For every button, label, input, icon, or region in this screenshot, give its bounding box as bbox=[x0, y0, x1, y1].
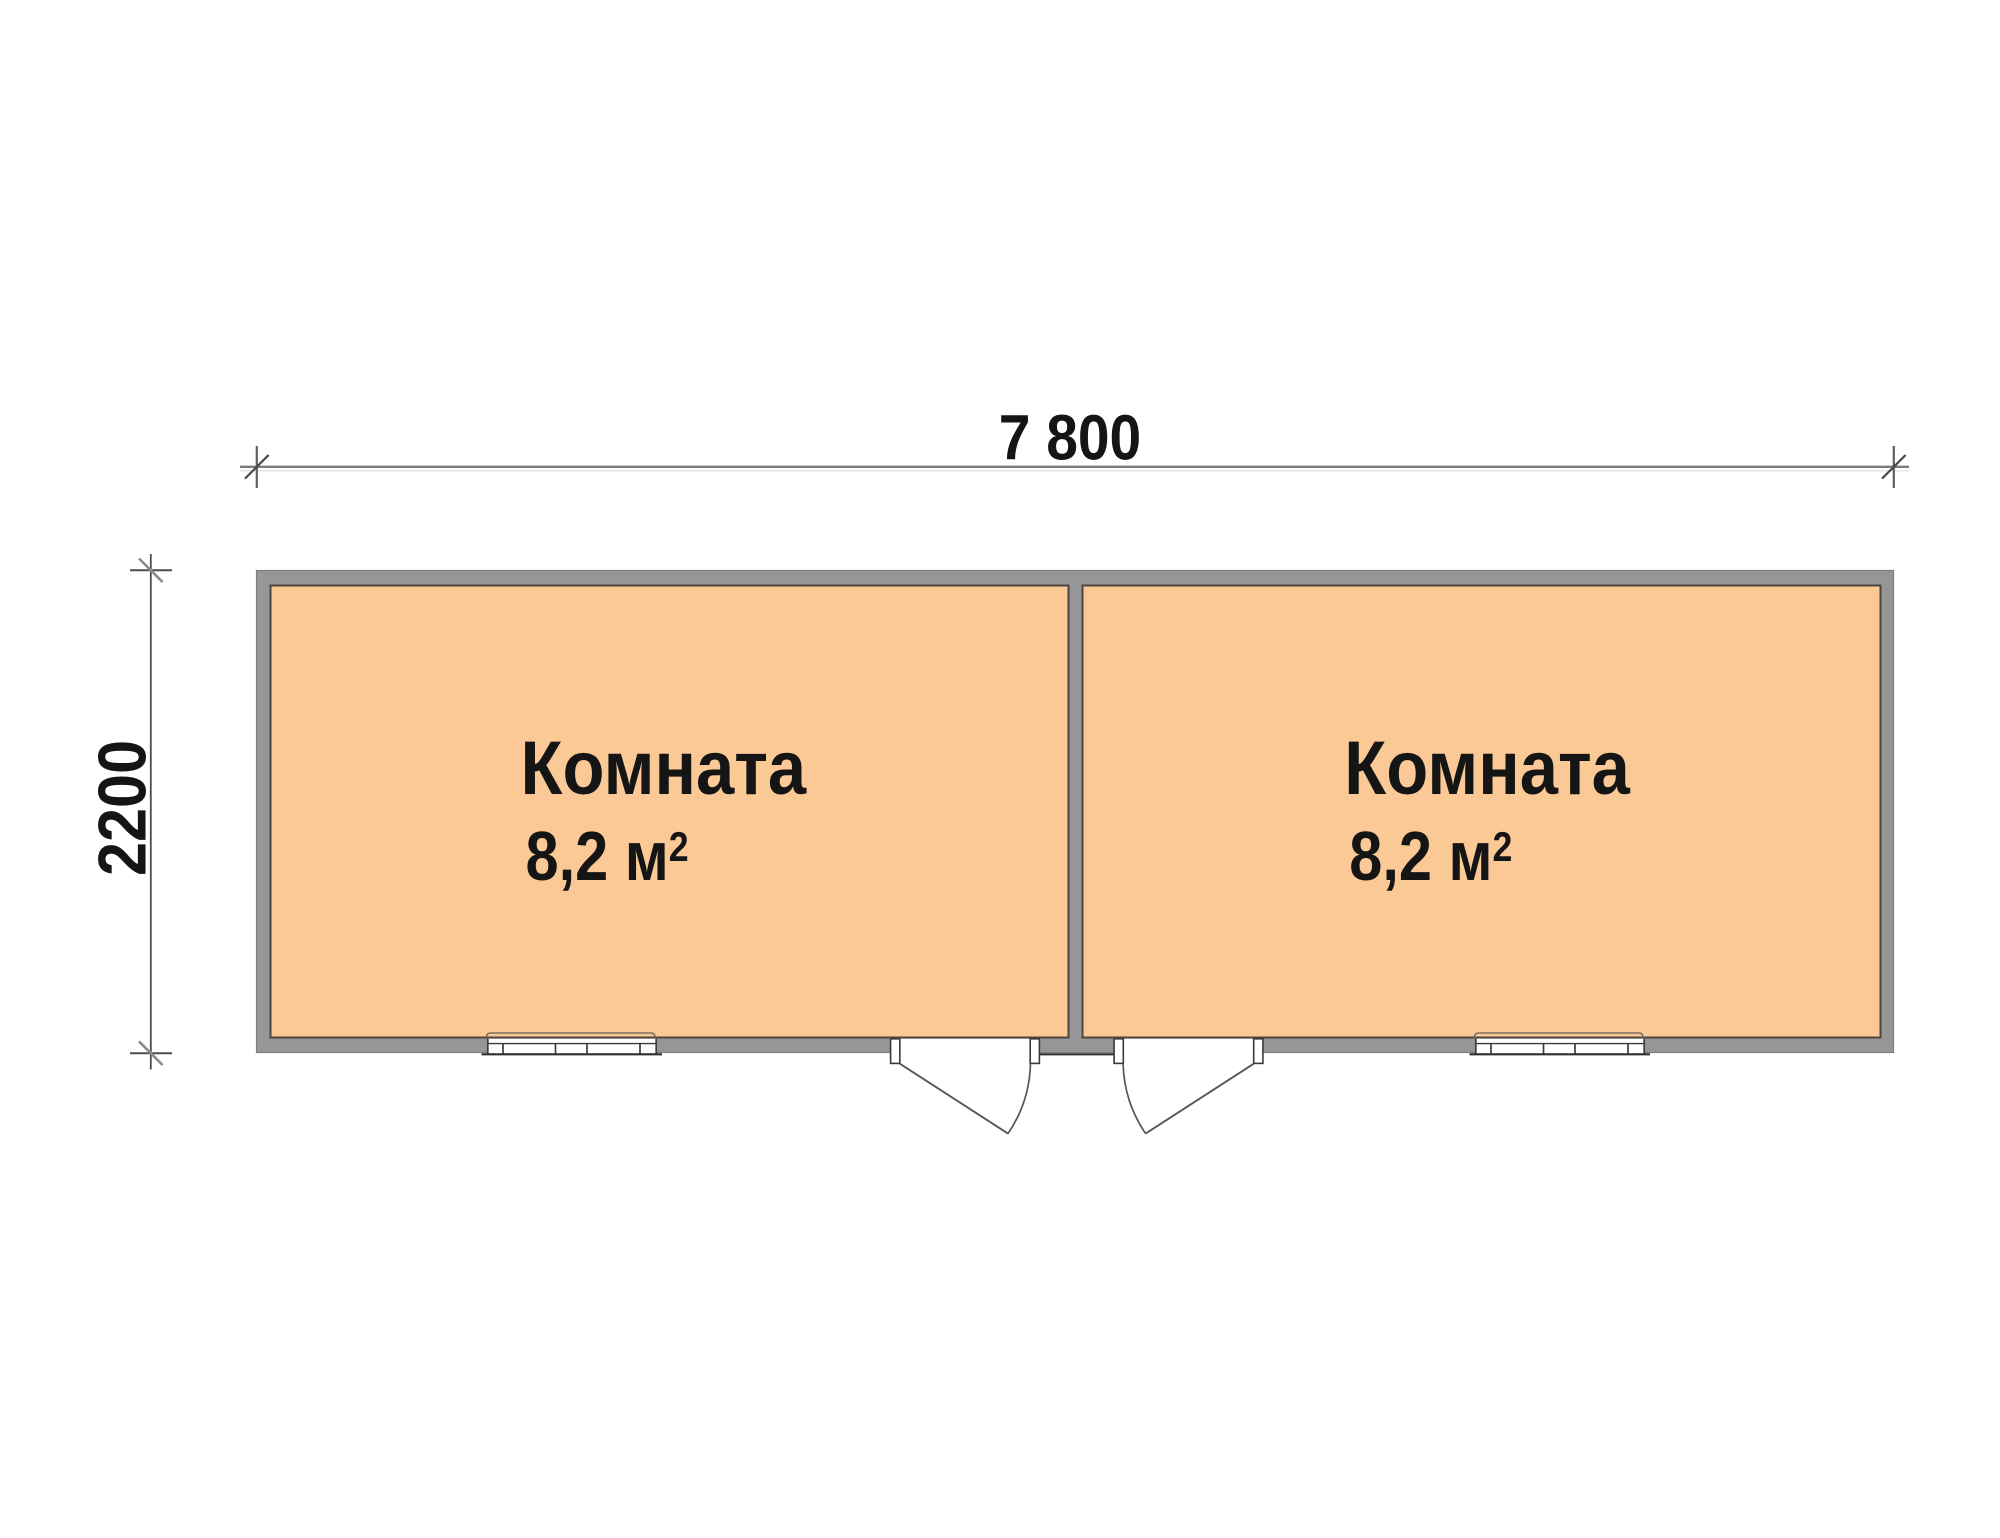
svg-text:8,2 м2: 8,2 м2 bbox=[1349, 816, 1512, 895]
svg-text:7 800: 7 800 bbox=[999, 401, 1142, 473]
svg-text:8,2 м2: 8,2 м2 bbox=[526, 816, 689, 895]
svg-text:Комната: Комната bbox=[521, 726, 807, 811]
svg-text:Комната: Комната bbox=[1344, 726, 1630, 811]
svg-text:2200: 2200 bbox=[83, 740, 160, 876]
